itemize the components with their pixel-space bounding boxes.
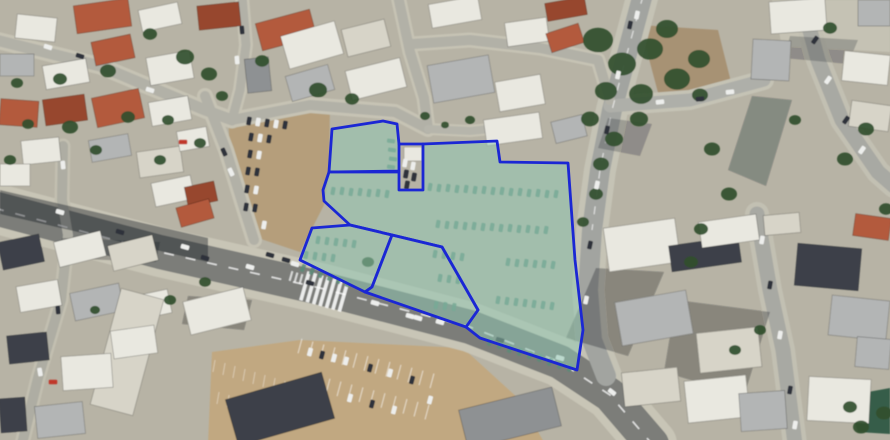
tree: [637, 38, 663, 59]
tree: [837, 152, 853, 165]
tree: [858, 122, 874, 135]
tree: [688, 50, 710, 68]
tree: [201, 67, 217, 80]
building: [0, 397, 27, 433]
tree: [843, 401, 857, 412]
car: [239, 26, 244, 35]
building: [855, 337, 890, 370]
car: [656, 99, 665, 104]
building: [34, 402, 85, 439]
tree: [589, 188, 603, 199]
tree: [608, 53, 636, 76]
tree: [22, 119, 34, 129]
car: [726, 89, 735, 94]
building: [763, 212, 801, 235]
tree: [630, 112, 648, 127]
building: [404, 147, 422, 161]
tree: [729, 345, 741, 355]
tree: [309, 83, 327, 98]
tree: [90, 306, 100, 314]
tree: [121, 111, 135, 122]
building: [621, 367, 680, 407]
building: [739, 390, 788, 431]
building: [769, 0, 827, 34]
car: [234, 56, 239, 65]
building: [751, 39, 791, 81]
tree: [664, 68, 690, 89]
building: [15, 14, 57, 42]
tree: [593, 157, 609, 170]
tree: [721, 187, 737, 200]
tree: [143, 28, 157, 39]
building: [794, 243, 861, 290]
building: [828, 295, 890, 341]
parcel-a[interactable]: [329, 121, 399, 172]
tree: [704, 142, 720, 155]
building: [197, 2, 241, 30]
tree: [216, 91, 228, 101]
building: [7, 332, 50, 364]
tree: [199, 277, 211, 287]
car: [55, 306, 60, 315]
tree: [345, 93, 359, 104]
building: [842, 51, 890, 86]
tree: [581, 112, 599, 127]
tree: [441, 122, 449, 129]
satellite-map-view[interactable]: [0, 0, 890, 440]
tree: [694, 223, 708, 234]
tree: [53, 73, 67, 84]
building: [61, 353, 113, 390]
tree: [162, 115, 174, 125]
car: [60, 161, 65, 170]
tree: [684, 256, 698, 267]
tree: [853, 420, 869, 433]
building: [21, 137, 61, 165]
building: [0, 54, 34, 76]
tree: [754, 325, 766, 335]
tree: [656, 20, 678, 38]
building: [42, 94, 87, 126]
tree: [154, 155, 166, 165]
tree: [629, 84, 653, 104]
building: [0, 164, 30, 186]
car: [179, 140, 188, 145]
tree: [595, 82, 617, 100]
tree: [176, 50, 194, 65]
map-canvas: [0, 0, 890, 440]
tree: [255, 55, 269, 66]
tree: [4, 155, 16, 165]
tree: [823, 22, 837, 33]
building: [853, 214, 890, 241]
car: [696, 96, 705, 101]
building: [603, 218, 680, 272]
car: [49, 380, 58, 385]
tree: [194, 138, 206, 148]
building: [807, 376, 871, 423]
tree: [420, 112, 430, 120]
tree: [789, 115, 801, 125]
tree: [62, 120, 78, 133]
tree: [577, 217, 589, 227]
tree: [465, 116, 475, 124]
building: [858, 0, 890, 26]
building: [110, 325, 157, 359]
tree: [100, 64, 116, 77]
tree: [11, 78, 23, 88]
tree: [164, 295, 176, 305]
tree: [90, 145, 102, 155]
tree: [583, 28, 613, 53]
